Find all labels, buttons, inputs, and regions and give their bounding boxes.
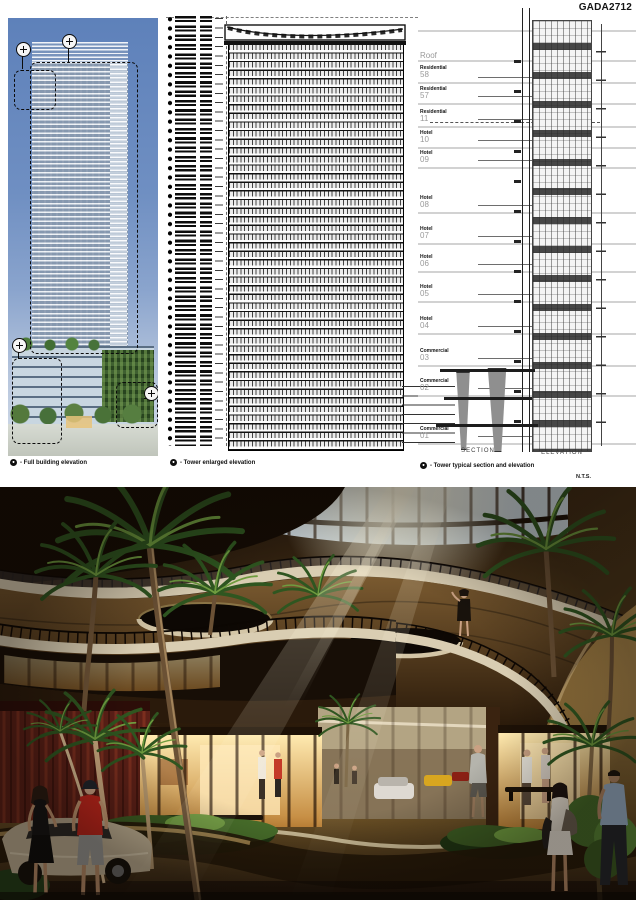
detail-marker-icon (144, 386, 158, 401)
elevation-label: ELEVATION (532, 450, 592, 456)
caption-label: - Full building elevation (20, 460, 87, 466)
section-figures-column (514, 60, 521, 440)
drawing-marker-icon (420, 462, 427, 469)
level-markers-column (167, 16, 173, 446)
courtyard-render-illustration (0, 487, 636, 900)
board-code: GADA2712 (560, 2, 632, 13)
floor-label: Residential 57 (420, 87, 480, 101)
slab-line (440, 369, 535, 372)
marker-stem (18, 352, 19, 359)
elevation-strip (532, 20, 592, 452)
caption-section-elevation: - Tower typical section and elevation (420, 462, 534, 469)
slab-line (444, 397, 532, 400)
caption-label: - Tower enlarged elevation (180, 460, 255, 466)
floor-label: Roof (420, 52, 480, 60)
tapered-column (486, 368, 508, 452)
floor-label: Commercial 01 (420, 427, 480, 441)
callout-box-crown (14, 70, 56, 110)
level-grid-line (226, 16, 227, 446)
presentation-board: GADA2712 - Full building elevation (0, 0, 636, 900)
level-texts-column (175, 16, 212, 446)
floor-label: Hotel 06 (420, 255, 480, 269)
floor-label: Hotel 04 (420, 317, 480, 331)
floor-label: Residential 58 (420, 66, 480, 80)
caption-enlarged-elevation: - Tower enlarged elevation (170, 459, 255, 466)
courtyard-render (0, 487, 636, 900)
floor-label: Commercial 03 (420, 349, 480, 363)
slab-line (436, 424, 538, 427)
section-label: SECTION (448, 448, 508, 454)
floor-label: Residential 11 (420, 110, 480, 124)
full-building-photo (8, 18, 158, 456)
floor-label: Commercial 02 (420, 379, 480, 393)
detail-marker-icon (12, 338, 27, 353)
section-core-lines (522, 8, 530, 452)
caption-label: - Tower typical section and elevation (430, 463, 534, 469)
detail-marker-icon (16, 42, 31, 57)
dimension-ticks (596, 24, 606, 446)
drawing-marker-icon (170, 459, 177, 466)
floor-label: Hotel 08 (420, 196, 480, 210)
floor-label: Hotel 07 (420, 227, 480, 241)
callout-box-podium (12, 358, 62, 444)
nts-label: N.T.S. (576, 474, 591, 480)
floor-label: Hotel 09 (420, 151, 480, 165)
caption-full-building: - Full building elevation (10, 459, 87, 466)
photo-tower-crown (32, 42, 128, 64)
marker-stem (22, 56, 23, 69)
drawing-marker-icon (10, 459, 17, 466)
tower-enlarged-elevation-grid (228, 45, 404, 451)
level-ticks-column (215, 16, 223, 446)
floor-label: Hotel 10 (420, 131, 480, 145)
detail-marker-icon (62, 34, 77, 49)
floor-label: Hotel 05 (420, 285, 480, 299)
photo-entrance-glow (66, 416, 92, 428)
marker-stem (68, 47, 69, 62)
